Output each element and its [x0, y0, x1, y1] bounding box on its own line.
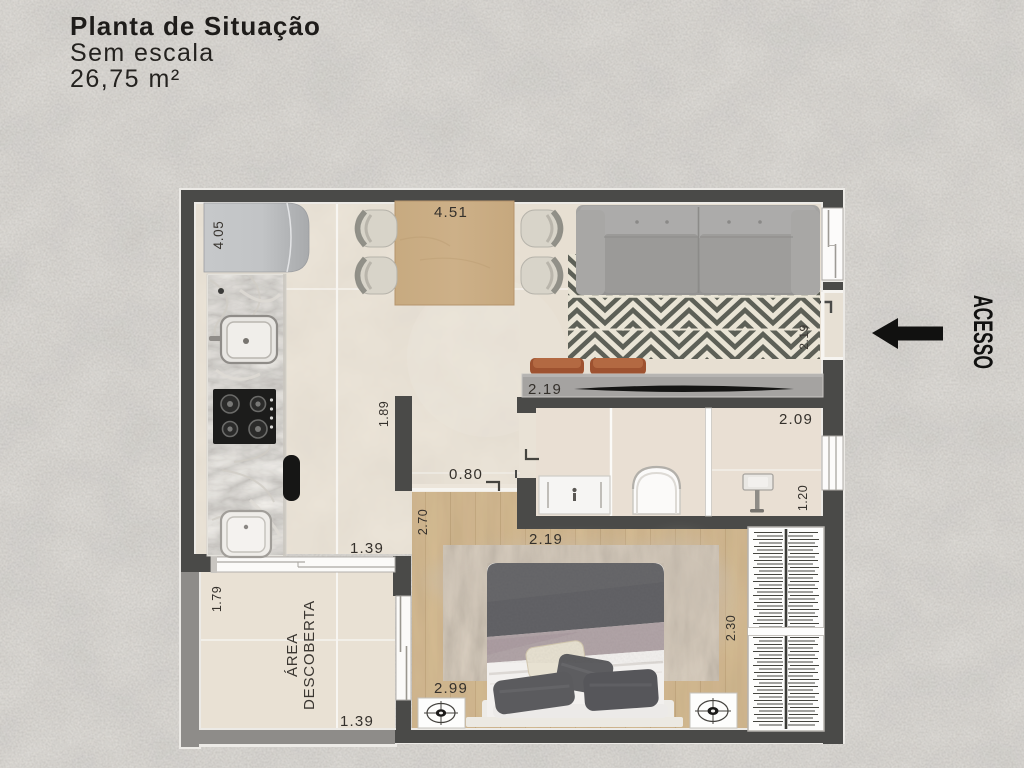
svg-text:2.19: 2.19 — [528, 381, 562, 398]
svg-text:2.99: 2.99 — [434, 680, 468, 697]
svg-text:2.19: 2.19 — [529, 531, 563, 548]
svg-text:2.19: 2.19 — [797, 324, 811, 349]
svg-text:2.09: 2.09 — [779, 411, 813, 428]
svg-text:1.39: 1.39 — [350, 540, 384, 557]
svg-text:4.05: 4.05 — [211, 221, 226, 250]
svg-text:2.70: 2.70 — [416, 509, 430, 535]
svg-text:0.80: 0.80 — [449, 466, 483, 483]
svg-text:Planta de Situação: Planta de Situação — [70, 11, 321, 41]
svg-text:ACESSO: ACESSO — [968, 295, 998, 369]
svg-text:1.79: 1.79 — [210, 586, 224, 612]
svg-text:1.39: 1.39 — [340, 713, 374, 730]
svg-text:Sem escala: Sem escala — [70, 39, 215, 67]
svg-text:4.51: 4.51 — [434, 204, 468, 221]
svg-text:1.89: 1.89 — [377, 401, 391, 427]
svg-text:1.20: 1.20 — [796, 485, 810, 511]
svg-text:26,75 m²: 26,75 m² — [70, 65, 181, 93]
svg-text:2.30: 2.30 — [724, 615, 738, 641]
